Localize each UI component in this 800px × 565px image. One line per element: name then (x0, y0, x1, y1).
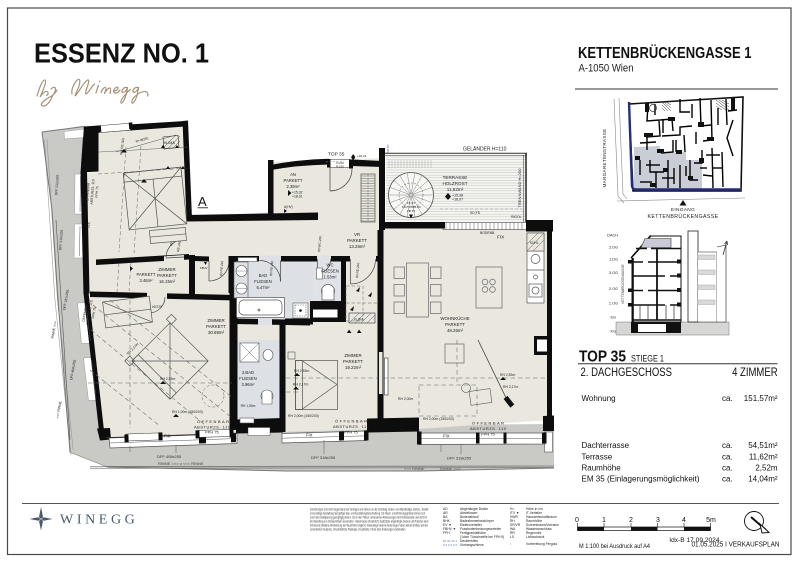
svg-text:PARKETT: PARKETT (283, 178, 302, 183)
svg-text:16.15m²: 16.15m² (159, 279, 176, 284)
svg-text:TOP 35: TOP 35 (328, 152, 345, 158)
svg-text:ca.: ca. (722, 464, 733, 473)
svg-text:FIX: FIX (164, 434, 171, 439)
svg-text:4 ZIMMER: 4 ZIMMER (732, 365, 778, 379)
svg-text:0: 0 (575, 517, 579, 524)
svg-text:WOHNKÜCHE: WOHNKÜCHE (440, 316, 469, 321)
svg-text:14,04m²: 14,04m² (748, 475, 778, 484)
svg-text:Dachterrasse: Dachterrasse (582, 441, 630, 450)
svg-text:PARKETT: PARKETT (136, 272, 155, 277)
svg-text:ÖFFENBAR: ÖFFENBAR (472, 421, 504, 426)
svg-text:ZIMMER: ZIMMER (344, 353, 361, 358)
svg-text:1.53m²: 1.53m² (323, 275, 337, 280)
svg-text:EM 35 (Einlagerungsmöglichkeit: EM 35 (Einlagerungsmöglichkeit) (582, 475, 700, 484)
svg-text:HOLZROST: HOLZROST (442, 181, 467, 186)
svg-text:BODENB.: BODENB. (480, 231, 495, 235)
svg-text:1: 1 (602, 517, 606, 524)
svg-text:TOP 35: TOP 35 (579, 349, 626, 366)
svg-text:Terrasse: Terrasse (582, 453, 613, 462)
svg-text:RH 2,53m: RH 2,53m (294, 369, 309, 373)
svg-text:11,62m²: 11,62m² (447, 187, 464, 192)
svg-text:FPH: FPH (443, 531, 450, 535)
svg-text:Lichtschacht: Lichtschacht (526, 535, 544, 539)
svg-text:2.OG: 2.OG (609, 287, 618, 291)
svg-text:PARKETT: PARKETT (445, 322, 465, 327)
svg-text:R1/20: R1/20 (336, 165, 344, 169)
svg-text:RH 1,50m: RH 1,50m (241, 404, 256, 408)
svg-text:WC: WC (327, 263, 334, 268)
svg-text:SD,FD: SD,FD (470, 211, 481, 215)
svg-text:82/220: 82/220 (152, 304, 162, 309)
svg-text:+18,22: +18,22 (357, 154, 367, 158)
svg-text:Raumhöhe: Raumhöhe (582, 464, 622, 473)
svg-text:Wohnung: Wohnung (582, 394, 616, 403)
svg-text:BAD: BAD (259, 273, 268, 278)
svg-text:2.39m²: 2.39m² (286, 184, 300, 189)
svg-text:DFF 318x255: DFF 318x255 (447, 456, 472, 461)
svg-text:MARGARETENSTRASSE: MARGARETENSTRASSE (602, 129, 607, 188)
svg-text:EINGANG: EINGANG (671, 207, 695, 213)
svg-text:FLIESEN: FLIESEN (321, 269, 338, 274)
svg-text:19.22m²: 19.22m² (345, 365, 362, 370)
svg-text:TRENNWAND H=200: TRENNWAND H=200 (517, 168, 522, 208)
svg-text:KLIMA: KLIMA (164, 141, 175, 145)
svg-text:1.OG: 1.OG (609, 302, 618, 306)
svg-text:ca.: ca. (722, 441, 733, 450)
svg-text:ABSTURZS. 110: ABSTURZS. 110 (333, 424, 370, 429)
svg-text:3.OG: 3.OG (609, 271, 618, 275)
svg-text:DACH: DACH (607, 234, 618, 238)
svg-text:FPH 75: FPH 75 (95, 186, 100, 198)
svg-text:KG: KG (611, 330, 617, 334)
svg-text:WINEGG: WINEGG (60, 513, 138, 528)
svg-text:A-1050 Wien: A-1050 Wien (579, 63, 634, 75)
svg-text:151.57m²: 151.57m² (744, 394, 778, 403)
svg-text:A(HV): A(HV) (284, 205, 293, 209)
svg-text:RINNE >>>: RINNE >>> (440, 466, 461, 471)
svg-text:A: A (198, 194, 207, 209)
svg-text:<<< RINNE: <<< RINNE (404, 466, 425, 471)
svg-text:STIEGE 1: STIEGE 1 (631, 354, 664, 364)
svg-text:2.BAD: 2.BAD (242, 370, 254, 375)
svg-text:54,51m²: 54,51m² (748, 441, 778, 450)
svg-text:4: 4 (682, 517, 686, 524)
svg-text:13.26m²: 13.26m² (349, 244, 366, 249)
svg-text:6.47m²: 6.47m² (256, 285, 270, 290)
svg-text:Vorhangschiene: Vorhangschiene (460, 543, 484, 547)
svg-text:TERRASSE: TERRASSE (443, 175, 468, 180)
svg-text:FB 75: FB 75 (407, 209, 416, 213)
svg-text:KÜHL: KÜHL (530, 241, 539, 245)
svg-text:RH 2,17m: RH 2,17m (503, 385, 518, 389)
svg-text:FIX: FIX (306, 433, 313, 438)
svg-text:3.96m²: 3.96m² (241, 382, 255, 387)
svg-text:PARKETT: PARKETT (347, 238, 367, 243)
svg-text:2,52m: 2,52m (755, 464, 778, 473)
svg-text:ÖFFENBAR: ÖFFENBAR (197, 419, 229, 424)
svg-text:ca.: ca. (722, 475, 733, 484)
svg-text:DFF 318x255: DFF 318x255 (311, 455, 336, 460)
svg-text:GELÄNDER H=110: GELÄNDER H=110 (463, 146, 507, 153)
svg-text:+18,01: +18,01 (292, 195, 303, 199)
svg-text:1.DG: 1.DG (609, 258, 618, 262)
svg-text:ESSENZ NO. 1: ESSENZ NO. 1 (34, 38, 209, 69)
svg-text:RH 2,00m (150/203): RH 2,00m (150/203) (423, 417, 454, 421)
svg-text:30.89m²: 30.89m² (208, 330, 225, 335)
svg-text:ABSTURZS. 110: ABSTURZS. 110 (470, 426, 507, 431)
svg-text:PARKETT: PARKETT (343, 359, 363, 364)
svg-text:RINNE >>> o <<< RINNE: RINNE >>> o <<< RINNE (158, 461, 204, 466)
svg-text:3: 3 (656, 517, 660, 524)
svg-text:DFF 408x255: DFF 408x255 (157, 454, 182, 459)
svg-text:2. DACHGESCHOSS: 2. DACHGESCHOSS (581, 365, 673, 379)
svg-text:RH 2,17m: RH 2,17m (293, 383, 308, 387)
svg-text:VR: VR (354, 232, 360, 237)
svg-text:▫: ▫ (510, 542, 511, 546)
svg-text:5m: 5m (706, 517, 716, 524)
svg-text:48.26m²: 48.26m² (447, 328, 464, 333)
svg-text:2: 2 (629, 517, 633, 524)
svg-text:FLIESEN: FLIESEN (239, 376, 256, 381)
svg-text:ZIMMER: ZIMMER (158, 267, 175, 272)
svg-text:vereinbarten Kaufpreis. Unverb: vereinbarten Kaufpreis. Unverbindliche P… (310, 527, 406, 531)
svg-text:ZIMMER: ZIMMER (207, 318, 224, 323)
svg-text:ca.: ca. (722, 453, 733, 462)
svg-text:RH 2,00m: RH 2,00m (398, 397, 413, 401)
svg-text:ca.: ca. (722, 394, 733, 403)
svg-text:FPH 75: FPH 75 (205, 430, 219, 435)
svg-text:AN: AN (290, 172, 296, 177)
svg-text:3.46m²: 3.46m² (139, 278, 153, 283)
svg-text:FIX: FIX (497, 235, 504, 240)
svg-text:+18,07: +18,07 (452, 198, 463, 202)
svg-text:KETTENBRÜCKENGASSE: KETTENBRÜCKENGASSE (621, 264, 625, 303)
svg-text:01.05.2025 I VERKAUFSPLAN: 01.05.2025 I VERKAUFSPLAN (692, 542, 780, 549)
svg-text:RH 1,00m (150/203): RH 1,00m (150/203) (172, 410, 203, 414)
svg-text:RH 2,00m (150/203): RH 2,00m (150/203) (288, 414, 319, 418)
svg-text:ÖFFENBAR: ÖFFENBAR (335, 419, 367, 424)
svg-text:FPH 75: FPH 75 (481, 432, 495, 437)
svg-text:FPH 75: FPH 75 (344, 430, 358, 435)
svg-text:EG: EG (611, 316, 617, 320)
svg-text:2.DG: 2.DG (609, 246, 618, 250)
svg-text:KETTENBRÜCKENGASSE 1: KETTENBRÜCKENGASSE 1 (578, 45, 752, 62)
svg-text:FLIESEN: FLIESEN (254, 279, 271, 284)
svg-text:KETTENBRÜCKENGASSE: KETTENBRÜCKENGASSE (648, 213, 719, 220)
svg-text:RH 2,53m: RH 2,53m (500, 373, 515, 377)
svg-text:RIGOL: RIGOL (511, 215, 522, 219)
svg-text:11,62m²: 11,62m² (749, 453, 778, 462)
svg-text:M 1:100 bei Ausdruck auf A4: M 1:100 bei Ausdruck auf A4 (579, 543, 650, 550)
svg-text:SD FD: SD FD (386, 145, 390, 153)
svg-text:FIX: FIX (443, 434, 450, 439)
svg-text:RH 2,53m: RH 2,53m (160, 377, 175, 381)
svg-text:Vorbereitung Pergola: Vorbereitung Pergola (526, 542, 557, 546)
svg-text:PARKETT: PARKETT (157, 273, 177, 278)
svg-text:FBHV: FBHV (200, 266, 208, 270)
svg-text:PARKETT: PARKETT (206, 324, 226, 329)
